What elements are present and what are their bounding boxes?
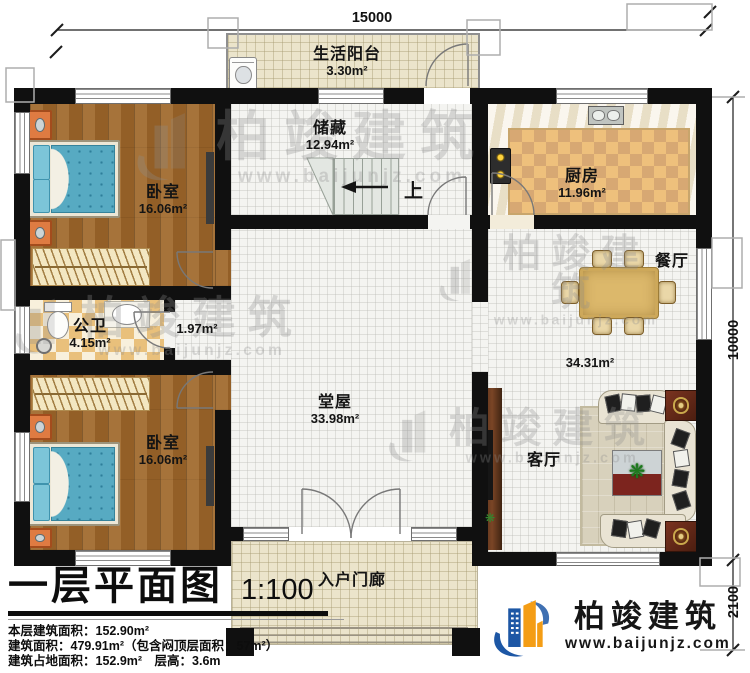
room-label-living: 客厅: [527, 452, 561, 470]
dim-right-height: 10000: [726, 320, 742, 360]
porch-column-right: [452, 628, 480, 656]
room-name: 生活阳台: [313, 46, 381, 64]
room-area: 33.98m²: [311, 412, 359, 427]
room-label-bedroom-top: 卧室 16.06m²: [139, 184, 187, 216]
room-label-bathroom: 公卫 4.15m²: [69, 318, 110, 350]
room-label-dining: 餐厅: [655, 253, 689, 271]
side-table-bottom: [665, 521, 697, 552]
opening-bedroom-top-door: [215, 250, 231, 286]
opening-hall-dining: [472, 302, 488, 372]
bedroom-bottom-tv: [206, 446, 214, 506]
wardrobe-top: [32, 248, 150, 286]
room-name: 客厅: [527, 452, 561, 470]
sofa-pillow: [627, 520, 645, 539]
pillow: [33, 145, 50, 180]
room-area: 11.96m²: [558, 186, 606, 201]
side-table-top: [665, 390, 697, 421]
window-storage: [318, 88, 384, 104]
room-area: 3.30m²: [313, 64, 381, 79]
bed-top: [28, 140, 120, 218]
dim-top-width: 15000: [352, 10, 392, 26]
title-rule-thick: [8, 611, 328, 616]
wall-bath-bottom: [14, 360, 231, 375]
room-label-bedroom-bottom: 卧室 16.06m²: [139, 435, 187, 467]
room-label-balcony: 生活阳台 3.30m²: [313, 46, 381, 78]
opening-bathroom-door: [164, 312, 175, 348]
toilet-icon: [47, 311, 69, 339]
room-name: 公卫: [69, 318, 110, 336]
window-dining-right: [696, 248, 712, 340]
coffee-table: ❋: [612, 450, 662, 496]
shower-icon: [36, 338, 52, 354]
room-label-hallway: 1.97m²: [176, 322, 217, 337]
wardrobe-bottom: [32, 377, 150, 411]
wall-v1-lower: [215, 410, 231, 566]
wall-bath-top: [14, 286, 231, 300]
stat-floor-area: 本层建筑面积：152.90m²: [8, 624, 344, 639]
bathroom-sink-icon: [112, 304, 142, 325]
opening-entrance: [289, 527, 411, 541]
room-name: 卧室: [139, 435, 187, 453]
stat-total-area: 建筑面积：479.91m²（包含闷顶层面积：57m²）: [8, 639, 344, 654]
dining-chair: [592, 317, 612, 335]
room-name: 堂屋: [311, 394, 359, 412]
window-bedroom-bottom-left: [14, 432, 30, 502]
company-name: 柏竣建筑: [565, 601, 731, 634]
stairs-up-label: 上: [404, 176, 423, 203]
nightstand: [28, 414, 52, 440]
kitchen-sink-icon: [588, 106, 624, 125]
window-entrance-right: [411, 527, 457, 541]
pillow: [33, 484, 50, 521]
opening-bedroom-bottom-door: [215, 375, 231, 410]
room-name: 储藏: [306, 120, 354, 138]
room-name: 餐厅: [655, 253, 689, 271]
stairs: [333, 158, 399, 215]
room-area: 4.15m²: [69, 336, 110, 351]
opening-balcony-door: [424, 88, 470, 104]
opening-storage-door: [428, 215, 470, 229]
room-label-hall: 堂屋 33.98m²: [311, 394, 359, 426]
wall-v3-lower: [472, 372, 488, 566]
title-rule-thin: [8, 619, 344, 620]
plant-icon: ❋: [629, 462, 646, 482]
dining-chair: [658, 281, 676, 304]
nightstand: [28, 220, 52, 246]
plant-icon: ❋: [485, 512, 495, 524]
washing-machine-icon: [229, 57, 257, 91]
dining-chair: [592, 250, 612, 268]
bed-bottom: [28, 442, 120, 526]
room-area: 1.97m²: [176, 322, 217, 337]
dining-chair: [624, 250, 644, 268]
room-name: 厨房: [558, 168, 606, 186]
room-name: 卧室: [139, 184, 187, 202]
pillow: [33, 179, 50, 214]
plan-scale: 1:100: [241, 574, 314, 607]
window-bathroom-left: [14, 306, 30, 354]
room-label-kitchen: 厨房 11.96m²: [558, 168, 606, 200]
room-label-dining-living-area: 34.31m²: [566, 356, 614, 371]
plan-title: 一层平面图: [8, 564, 223, 608]
room-area: 16.06m²: [139, 202, 187, 217]
window-kitchen: [556, 88, 648, 104]
window-bedroom-top: [75, 88, 171, 104]
company-logo-icon: [487, 596, 557, 658]
wall-v3-upper: [472, 104, 488, 302]
company-logo: 柏竣建筑 www.baijunjz.com: [487, 596, 731, 658]
hall-floor: [231, 229, 472, 527]
room-area: 12.94m²: [306, 138, 354, 153]
pillow: [33, 447, 50, 484]
sofa-pillow: [672, 469, 690, 488]
blanket: [51, 145, 81, 213]
window-entrance-left: [243, 527, 289, 541]
nightstand: [28, 110, 52, 140]
stat-footprint: 建筑占地面积：152.9m² 层高：3.6m: [8, 654, 344, 669]
sofa-pillow: [673, 449, 690, 468]
floor-plan-canvas: ❋ ❋: [0, 0, 750, 673]
dining-chair: [561, 281, 579, 304]
bedroom-top-tv: [206, 152, 214, 224]
nightstand: [28, 528, 52, 548]
title-block: 一层平面图 1:100 本层建筑面积：152.90m² 建筑面积：479.91m…: [8, 564, 344, 669]
company-website: www.baijunjz.com: [565, 635, 731, 653]
dining-table: [579, 267, 659, 319]
room-area: 16.06m²: [139, 453, 187, 468]
dining-chair: [624, 317, 644, 335]
sofa-pillow: [611, 519, 628, 538]
room-area: 34.31m²: [566, 356, 614, 371]
opening-kitchen-door: [490, 215, 534, 229]
window-bedroom-top-left: [14, 112, 30, 174]
window-living-bottom: [556, 552, 660, 566]
room-label-storage: 储藏 12.94m²: [306, 120, 354, 152]
stove-icon: [490, 148, 511, 184]
blanket: [51, 447, 81, 521]
